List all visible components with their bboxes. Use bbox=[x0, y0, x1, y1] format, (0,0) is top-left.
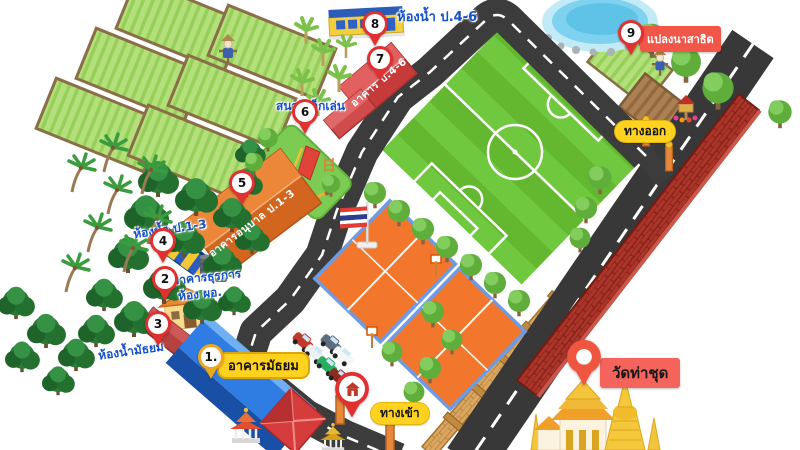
label-temple: วัดท่าชุด bbox=[600, 358, 680, 388]
marker-pin-1: 1. bbox=[198, 344, 224, 381]
pin-hole bbox=[576, 349, 592, 365]
pin-number: 5 bbox=[232, 173, 252, 193]
marker-pin-5: 5 bbox=[229, 170, 255, 207]
pin-number: 1. bbox=[201, 347, 221, 367]
pin-number: 4 bbox=[153, 231, 173, 251]
pin-number: 8 bbox=[365, 14, 385, 34]
marker-pin-4: 4 bbox=[150, 228, 176, 265]
label-entrance: ทางเข้า bbox=[370, 402, 430, 425]
label-rice-demo: แปลงนาสาธิต bbox=[640, 26, 721, 52]
marker-pin-2: 2 bbox=[152, 266, 178, 303]
marker-pin-6: 6 bbox=[292, 99, 318, 136]
marker-pin-3: 3 bbox=[145, 311, 171, 348]
label-exit: ทางออก bbox=[614, 120, 676, 143]
temple-marker-pin bbox=[567, 340, 601, 388]
exit-gate-post bbox=[666, 141, 673, 171]
pin-number: 6 bbox=[295, 102, 315, 122]
pin-number: 9 bbox=[621, 23, 641, 43]
label-secondary-building: อาคารมัธยม bbox=[217, 352, 310, 379]
pin-number: 2 bbox=[155, 269, 175, 289]
marker-pin-8: 8 bbox=[362, 11, 388, 48]
entrance-marker-pin bbox=[335, 372, 369, 420]
pin-number: 3 bbox=[148, 314, 168, 334]
school-icon bbox=[339, 376, 365, 402]
marker-pin-9: 9 bbox=[618, 20, 644, 57]
campus-map: ห้องน้ำ ป.4-6 สนามเด็กเล่น ห้องน้ำ ป.1-3… bbox=[0, 0, 800, 450]
label-toilet-p46: ห้องน้ำ ป.4-6 bbox=[397, 6, 477, 27]
